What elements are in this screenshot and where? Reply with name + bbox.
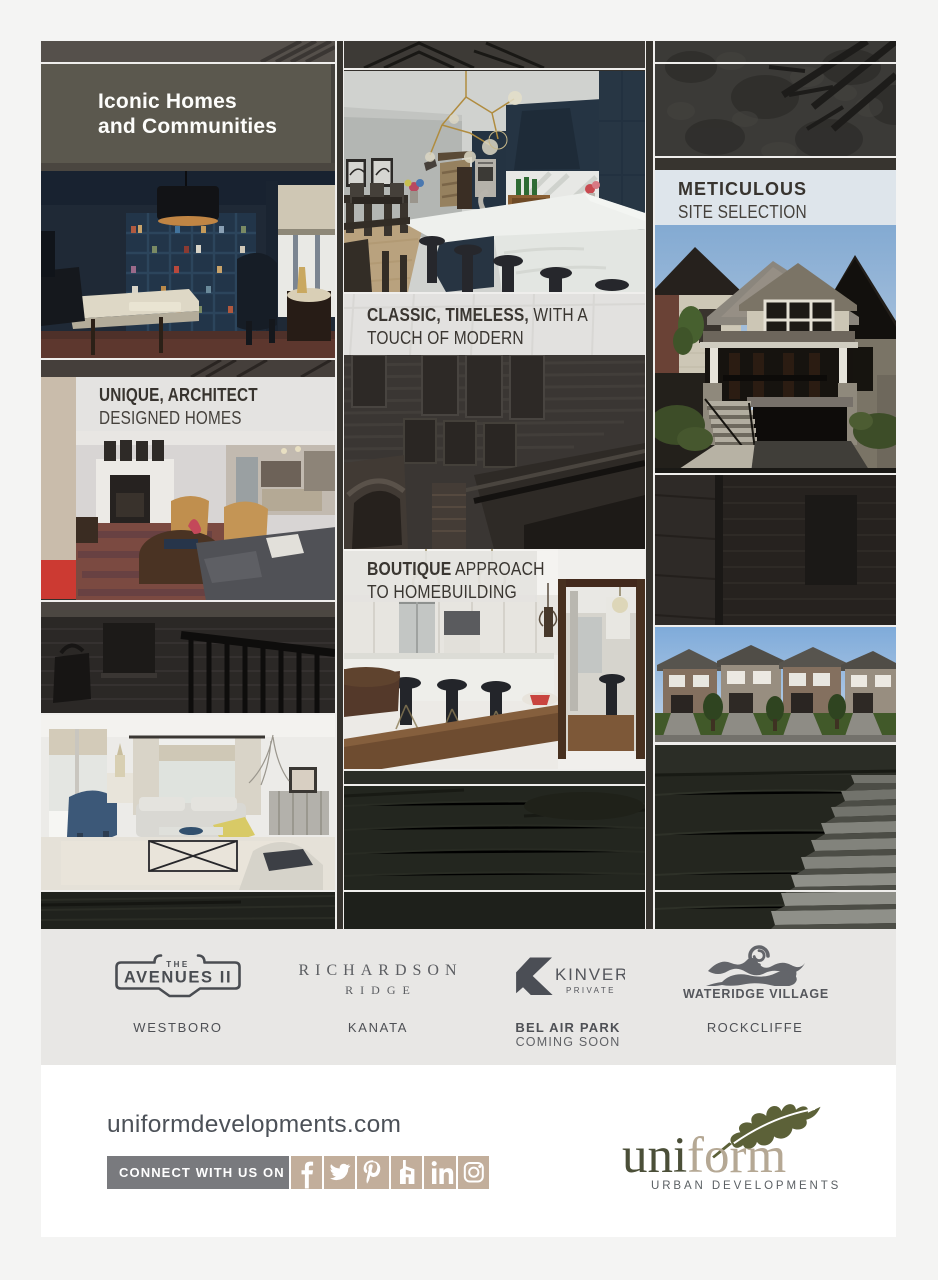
svg-text:KINVER: KINVER [555,965,625,984]
svg-text:AVENUES II: AVENUES II [124,969,232,987]
svg-text:form: form [687,1128,786,1184]
svg-text:URBAN DEVELOPMENTS: URBAN DEVELOPMENTS [651,1180,841,1192]
svg-text:PRIVATE: PRIVATE [566,986,616,995]
svg-text:uni: uni [622,1128,687,1184]
